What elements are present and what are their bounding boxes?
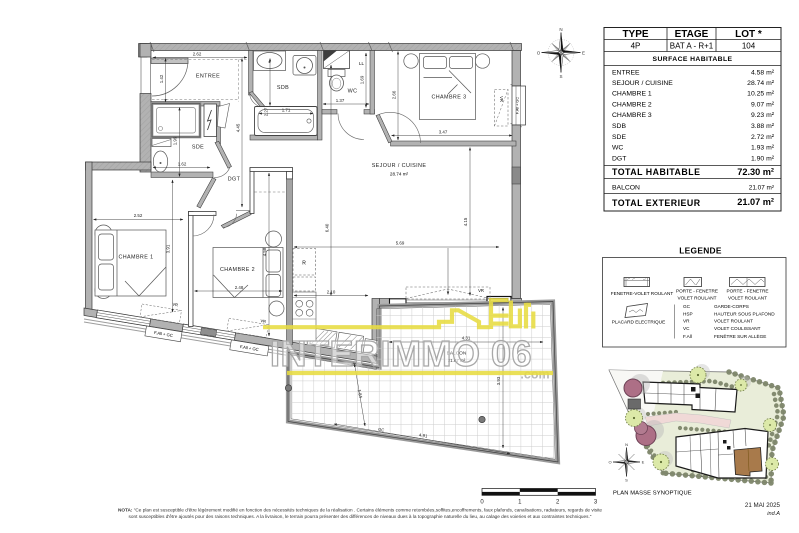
svg-text:O: O	[537, 50, 541, 55]
svg-text:SDB: SDB	[277, 85, 289, 91]
svg-text:S: S	[625, 478, 628, 483]
svg-text:72.30 m²: 72.30 m²	[737, 167, 774, 177]
svg-text:FENÊTRE SUR ALLÈGE: FENÊTRE SUR ALLÈGE	[714, 332, 766, 339]
svg-text:PORTE - FENETRE: PORTE - FENETRE	[676, 288, 718, 293]
svg-text:CHAMBRE 1: CHAMBRE 1	[118, 255, 153, 261]
svg-text:CHAMBRE 2: CHAMBRE 2	[612, 101, 652, 108]
svg-text:LEGENDE: LEGENDE	[679, 246, 722, 256]
svg-text:9.23 m²: 9.23 m²	[751, 112, 775, 119]
svg-text:N: N	[559, 27, 562, 32]
svg-text:2.62: 2.62	[193, 52, 202, 57]
svg-text:5.69: 5.69	[396, 241, 405, 246]
svg-text:VOLET ROULANT: VOLET ROULANT	[714, 319, 753, 324]
svg-text:VR: VR	[683, 319, 690, 324]
svg-text:WC: WC	[612, 145, 623, 152]
svg-text:21.07 m²: 21.07 m²	[749, 184, 774, 191]
svg-text:1.71: 1.71	[282, 108, 291, 113]
svg-text:SURFACE HABITABLE: SURFACE HABITABLE	[653, 56, 733, 63]
svg-text:PLAN MASSE SYNOPTIQUE: PLAN MASSE SYNOPTIQUE	[613, 491, 692, 497]
svg-text:2.10: 2.10	[327, 290, 336, 295]
svg-text:CHAMBRE 3: CHAMBRE 3	[431, 95, 466, 101]
svg-text:VOLET COULISSANT: VOLET COULISSANT	[714, 326, 761, 331]
svg-text:CHAMBRE 2: CHAMBRE 2	[220, 267, 255, 273]
svg-text:SDB: SDB	[612, 123, 626, 130]
svg-text:LL: LL	[359, 61, 364, 66]
svg-text:BALCON: BALCON	[612, 184, 640, 191]
svg-text:SDE: SDE	[192, 145, 204, 151]
svg-text:SEJOUR / CUISINE: SEJOUR / CUISINE	[612, 80, 673, 87]
svg-text:VOLET ROULANT: VOLET ROULANT	[728, 296, 767, 301]
svg-text:PORTE - FENETRE: PORTE - FENETRE	[726, 288, 768, 293]
svg-text:F.All + GC: F.All + GC	[516, 97, 520, 114]
svg-text:O: O	[608, 460, 611, 465]
svg-text:S: S	[559, 74, 562, 79]
svg-text:4.15: 4.15	[463, 217, 468, 226]
svg-text:3.91: 3.91	[166, 244, 171, 253]
svg-text:GC: GC	[378, 427, 385, 433]
svg-text:E: E	[642, 460, 645, 465]
svg-text:N: N	[625, 442, 628, 447]
svg-text:3.93: 3.93	[496, 376, 501, 385]
svg-text:FENETRE-VOLET ROULANT: FENETRE-VOLET ROULANT	[611, 291, 674, 296]
svg-text:NOTA: "Ce plan est susceptible: NOTA: "Ce plan est susceptible d'être lé…	[118, 508, 602, 513]
svg-text:4P: 4P	[631, 42, 641, 51]
svg-text:VR: VR	[478, 288, 484, 293]
svg-text:GARDE-CORPS: GARDE-CORPS	[714, 304, 749, 309]
svg-text:INTERIMMO 06: INTERIMMO 06	[270, 333, 532, 374]
svg-text:VR: VR	[172, 302, 178, 308]
svg-text:28.74 m²: 28.74 m²	[390, 172, 409, 177]
svg-text:28.74 m²: 28.74 m²	[747, 80, 775, 87]
svg-text:1.99: 1.99	[173, 136, 178, 145]
svg-text:sont susceptibles d'être ajout: sont susceptibles d'être ajoutés pour de…	[129, 514, 592, 519]
svg-text:6.40: 6.40	[325, 223, 330, 232]
svg-text:SDE: SDE	[612, 134, 626, 141]
svg-text:1.69: 1.69	[360, 75, 365, 84]
svg-text:1.90 m²: 1.90 m²	[751, 156, 775, 163]
svg-text:104: 104	[742, 42, 756, 51]
svg-text:ind.A: ind.A	[767, 511, 780, 517]
svg-text:2.66: 2.66	[392, 90, 397, 99]
svg-text:ENTREE: ENTREE	[196, 74, 220, 80]
svg-text:DGT: DGT	[228, 177, 241, 183]
svg-text:LOT *: LOT *	[735, 29, 762, 40]
svg-text:E: E	[582, 50, 585, 55]
svg-text:4.45: 4.45	[236, 123, 241, 132]
svg-text:2.48: 2.48	[235, 285, 244, 290]
svg-text:TOTAL HABITABLE: TOTAL HABITABLE	[612, 167, 700, 177]
svg-text:TOTAL EXTERIEUR: TOTAL EXTERIEUR	[612, 198, 701, 208]
svg-text:1.42: 1.42	[159, 74, 164, 83]
svg-text:R: R	[302, 261, 306, 267]
svg-text:10.25 m²: 10.25 m²	[747, 91, 775, 98]
svg-text:F.All: F.All	[683, 334, 692, 339]
svg-text:HSP: HSP	[683, 311, 693, 316]
svg-text:CHAMBRE 1: CHAMBRE 1	[612, 91, 652, 98]
svg-text:2.52: 2.52	[134, 213, 143, 218]
svg-text:VOLET ROULANT: VOLET ROULANT	[678, 296, 717, 301]
svg-text:4.58 m²: 4.58 m²	[751, 70, 775, 77]
svg-text:4.58: 4.58	[262, 247, 267, 256]
svg-text:GC: GC	[683, 304, 691, 309]
svg-text:3.88 m²: 3.88 m²	[751, 123, 775, 130]
svg-text:VR: VR	[260, 318, 266, 324]
svg-text:HAUTEUR SOUS PLAFOND: HAUTEUR SOUS PLAFOND	[714, 311, 775, 316]
svg-text:ENTREE: ENTREE	[612, 70, 640, 77]
svg-text:21.07 m²: 21.07 m²	[737, 197, 774, 207]
svg-text:BAT A - R+1: BAT A - R+1	[670, 42, 714, 51]
svg-text:PLACARD ELECTRIQUE: PLACARD ELECTRIQUE	[612, 320, 665, 325]
svg-text:VC: VC	[683, 326, 690, 331]
svg-text:VR: VR	[499, 96, 504, 102]
svg-text:2.72 m²: 2.72 m²	[751, 134, 775, 141]
svg-text:1.62: 1.62	[178, 162, 187, 167]
svg-text:3.47: 3.47	[439, 130, 448, 135]
svg-text:TYPE: TYPE	[622, 29, 648, 40]
svg-text:DGT: DGT	[612, 156, 626, 163]
svg-text:ETAGE: ETAGE	[675, 29, 709, 40]
svg-text:SEJOUR / CUISINE: SEJOUR / CUISINE	[372, 163, 427, 169]
svg-text:CHAMBRE 3: CHAMBRE 3	[612, 112, 652, 119]
svg-text:WC: WC	[348, 89, 358, 95]
svg-text:2.27: 2.27	[264, 107, 269, 116]
svg-text:9.07 m²: 9.07 m²	[751, 101, 775, 108]
svg-text:21 MAI 2025: 21 MAI 2025	[745, 502, 781, 509]
svg-text:1.37: 1.37	[336, 98, 345, 103]
svg-text:1.93 m²: 1.93 m²	[751, 145, 775, 152]
